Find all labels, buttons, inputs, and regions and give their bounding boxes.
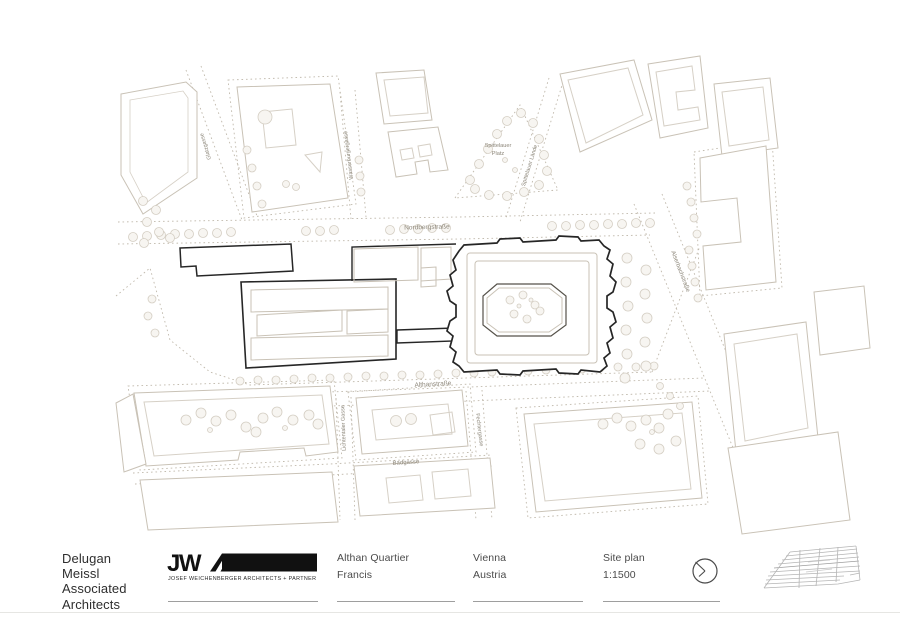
drawing-sheet: Nordbergstraße Althanstraße Badgasse Was… [0,0,900,636]
connector-building [397,328,454,343]
sheet-bottom-edge [0,612,900,613]
jwa-logo-bar [222,554,317,572]
titleblock-rule [337,601,455,602]
context-building [560,60,652,152]
street-label-glatzgasse: Glatzgasse [199,132,213,160]
project-building: Francis [337,569,409,581]
context-building [140,472,338,530]
context-building [724,322,818,452]
context-building [814,286,870,355]
context-building [237,84,348,212]
jwa-logo: JW JOSEF WEICHENBERGER ARCHITECTS + PART… [167,553,319,583]
drawing-title: Site plan [603,552,645,564]
drawing-scale: 1:1500 [603,569,645,581]
context-building [700,146,776,290]
site-plan: Nordbergstraße Althanstraße Badgasse Was… [0,0,900,540]
titleblock-rule [603,601,720,602]
west-building-outline [241,279,396,368]
context-building [121,82,197,214]
context-building [728,432,850,534]
project-column: Althan Quartier Francis [337,552,409,581]
context-building [354,458,495,516]
clock-icon [691,557,719,585]
context-building [388,127,448,177]
building-wireframe-icon [760,542,862,594]
althan-quartier-buildings [180,236,616,375]
place-label-spittelauer-platz: Spittelauer [485,143,512,149]
jwa-logo-letters: JW [167,553,202,577]
north-bar-building [180,244,293,276]
jwa-logo-caption: JOSEF WEICHENBERGER ARCHITECTS + PARTNER [168,576,316,582]
location-country: Austria [473,569,506,581]
project-name: Althan Quartier [337,552,409,564]
street-label-spittelauer-laende: Spittelauer Lände [521,144,539,187]
street-label-lichtentaler-gasse: Lichtentaler Gasse [340,405,348,451]
location-column: Vienna Austria [473,552,506,581]
place-label-spittelauer-platz-2: Platz [492,151,505,157]
titleblock-rule [168,601,318,602]
firm-name: Delugan Meissl Associated Architects [62,551,127,612]
titleblock-rule [473,601,583,602]
drawing-column: Site plan 1:1500 [603,552,645,581]
street-label-nordbergstrasse: Nordbergstraße [404,223,450,231]
street-label-wasserburgergasse: Wasserburgergasse [343,130,355,179]
context-building [714,78,778,156]
location-city: Vienna [473,552,506,564]
